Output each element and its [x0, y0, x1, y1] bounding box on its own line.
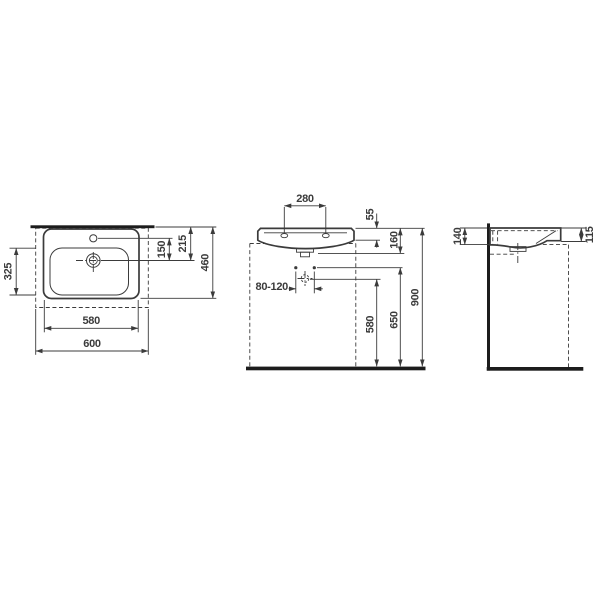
dim-waste-height: 580	[365, 279, 377, 366]
side-view: 140 115	[452, 223, 596, 370]
dim-bolt-height: 650	[388, 268, 400, 367]
dim-back-height: 140	[452, 227, 490, 245]
dim-label-325: 325	[3, 263, 15, 281]
dim-bowl-depth: 325	[3, 248, 17, 295]
dim-label-140: 140	[452, 227, 464, 245]
dim-label-650: 650	[388, 311, 400, 329]
bolt-left	[294, 266, 297, 269]
dim-label-460: 460	[199, 254, 211, 272]
floor-line-front	[246, 367, 426, 371]
front-view: 280 55 160 580 650 90	[246, 193, 426, 371]
dim-rim-height: 900	[409, 228, 422, 366]
dim-label-160: 160	[388, 231, 400, 249]
dim-label-150: 150	[156, 241, 168, 259]
dim-label-580-front: 580	[365, 316, 377, 334]
dim-front-edge-height: 115	[561, 226, 596, 243]
floor-line-side	[487, 367, 584, 371]
dim-label-80-120: 80-120	[256, 281, 289, 293]
dim-label-115: 115	[584, 226, 596, 243]
dim-basin-height: 160	[388, 228, 400, 253]
dim-overall-depth: 460	[199, 227, 213, 298]
dim-label-280: 280	[296, 193, 314, 205]
technical-drawing-page: 325 150 215 460 580 600	[0, 0, 600, 600]
dim-fixing-holes-spacing: 280	[284, 193, 326, 234]
dim-label-215: 215	[177, 235, 189, 253]
dim-label-600: 600	[83, 338, 101, 350]
basin-front-silhouette	[258, 228, 354, 248]
dim-basin-width: 580	[44, 315, 138, 328]
washbasin-dimension-drawing: 325 150 215 460 580 600	[0, 0, 600, 600]
bolt-right	[313, 266, 316, 269]
dim-label-580-top: 580	[82, 315, 100, 327]
dim-taphole-to-drain: 150	[156, 238, 170, 260]
drain-tailpipe	[301, 252, 310, 257]
wall-line	[31, 225, 155, 228]
dim-bolt-spacing: 80-120	[256, 272, 323, 294]
top-view: 325 150 215 460 580 600	[3, 225, 217, 354]
dim-overall-width: 600	[36, 338, 149, 351]
dim-wall-to-drain: 215	[177, 227, 191, 261]
dim-label-55: 55	[364, 209, 376, 221]
dim-label-900: 900	[409, 289, 421, 307]
